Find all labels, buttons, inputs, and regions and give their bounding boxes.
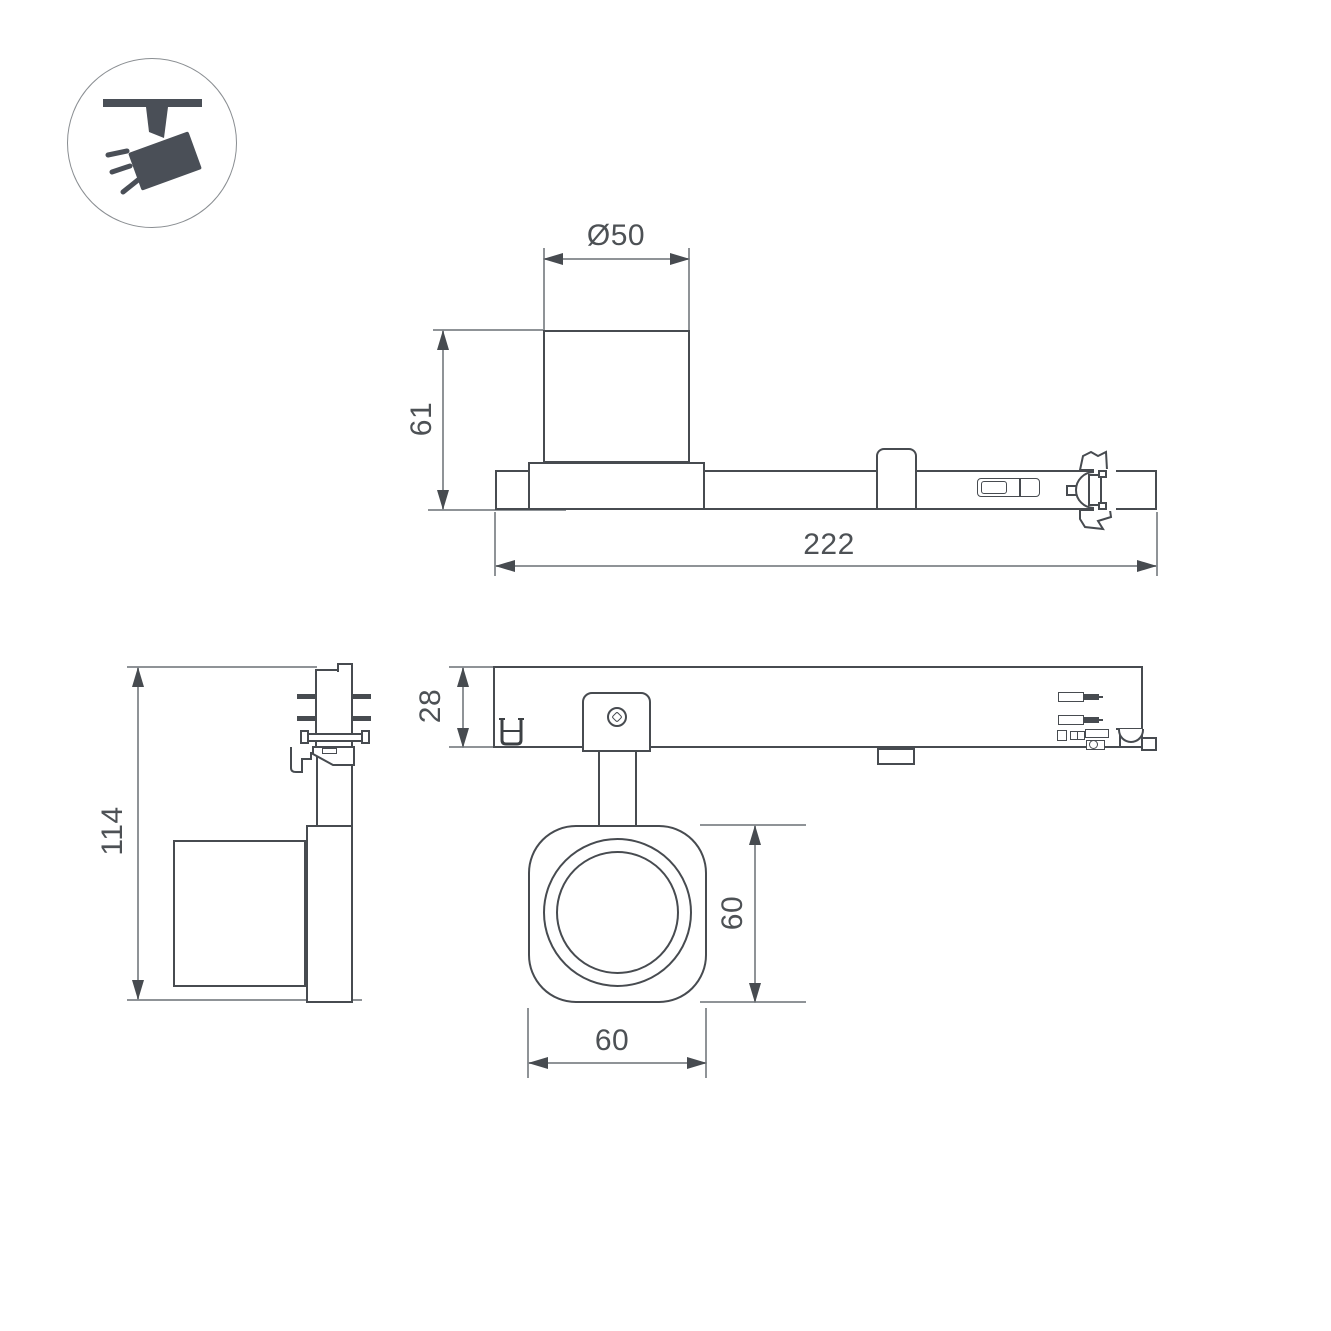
dim-label-head-height: 60 xyxy=(717,873,749,953)
side-view-adapter-base xyxy=(528,462,705,510)
arrow-depth-top xyxy=(457,667,469,687)
plan-view-end-tab xyxy=(1141,737,1157,751)
end-view-pin-left-1 xyxy=(297,694,315,699)
plan-view-detail-cell-2 xyxy=(1077,731,1085,740)
plan-view-detail-circle xyxy=(1089,740,1098,749)
plan-view-detail-bar xyxy=(1085,729,1109,738)
ext-line-height-top xyxy=(433,329,543,331)
plan-view-stem xyxy=(598,750,637,827)
ext-line-depth-bottom xyxy=(449,746,493,748)
arrow-height-top xyxy=(437,330,449,350)
track-spotlight-icon xyxy=(67,58,237,228)
side-view-lamp-cylinder xyxy=(543,330,690,463)
end-view-pin-right-1 xyxy=(353,694,371,699)
plan-view-contact-1-tip xyxy=(1083,694,1099,700)
arrow-diameter-left xyxy=(543,253,563,265)
end-view-flange-bar xyxy=(303,733,367,742)
plan-view-detail-square xyxy=(1057,730,1067,741)
dim-label-length: 222 xyxy=(754,529,904,561)
arrow-height-bottom xyxy=(437,490,449,510)
dim-label-total-height: 114 xyxy=(97,771,129,891)
arrow-length-left xyxy=(495,560,515,572)
side-view-power-box xyxy=(876,448,917,510)
side-view-switch-knob xyxy=(981,481,1007,494)
plan-view-contact-2-wire xyxy=(1099,719,1103,721)
dim-label-depth: 28 xyxy=(415,666,447,746)
dim-label-head-width: 60 xyxy=(537,1025,687,1057)
arrow-length-right xyxy=(1137,560,1157,572)
plan-view-contact-2-tip xyxy=(1083,717,1099,723)
end-view-pin-right-2 xyxy=(353,716,371,721)
plan-view-contact-2 xyxy=(1058,715,1084,725)
dim-line-height xyxy=(442,330,444,510)
arrow-head-width-right xyxy=(687,1057,707,1069)
plan-view-u-bracket xyxy=(497,715,527,749)
end-view-head-square xyxy=(173,840,306,987)
side-view-lock-nub-top xyxy=(1098,470,1107,478)
end-view-flange-tab-left xyxy=(300,730,309,744)
end-view-flange-tab-right xyxy=(361,730,370,744)
end-view-hook-detail xyxy=(322,748,337,754)
plan-view-contact-1-wire xyxy=(1099,696,1103,698)
arrow-total-bottom xyxy=(132,980,144,1000)
dim-line-diameter xyxy=(543,258,690,260)
dim-label-height: 61 xyxy=(406,379,438,459)
arrow-head-width-left xyxy=(528,1057,548,1069)
end-view-pin-left-2 xyxy=(297,716,315,721)
end-view-head-ring-body xyxy=(306,825,353,1003)
ext-line-total-top xyxy=(127,666,317,668)
dimension-drawing-canvas: Ø50 61 222 114 28 xyxy=(0,0,1331,1331)
ext-line-depth-top xyxy=(449,666,493,668)
plan-view-contact-1 xyxy=(1058,692,1084,702)
dim-line-head-height xyxy=(754,825,756,1003)
dim-line-length xyxy=(495,565,1157,567)
end-view-adapter-notch xyxy=(337,663,353,672)
arrow-diameter-right xyxy=(670,253,690,265)
dim-line-total-height xyxy=(137,667,139,1000)
arrow-head-height-top xyxy=(749,825,761,845)
dim-label-diameter: Ø50 xyxy=(541,220,691,252)
arrow-total-top xyxy=(132,667,144,687)
arrow-head-height-bottom xyxy=(749,983,761,1003)
side-view-switch-divider xyxy=(1019,479,1021,496)
front-view-lens-ring-inner xyxy=(556,851,679,974)
plan-view-power-box xyxy=(877,748,915,765)
side-view-lock-nub-bottom xyxy=(1098,502,1107,510)
dim-line-head-width xyxy=(528,1062,707,1064)
arrow-depth-bottom xyxy=(457,728,469,748)
